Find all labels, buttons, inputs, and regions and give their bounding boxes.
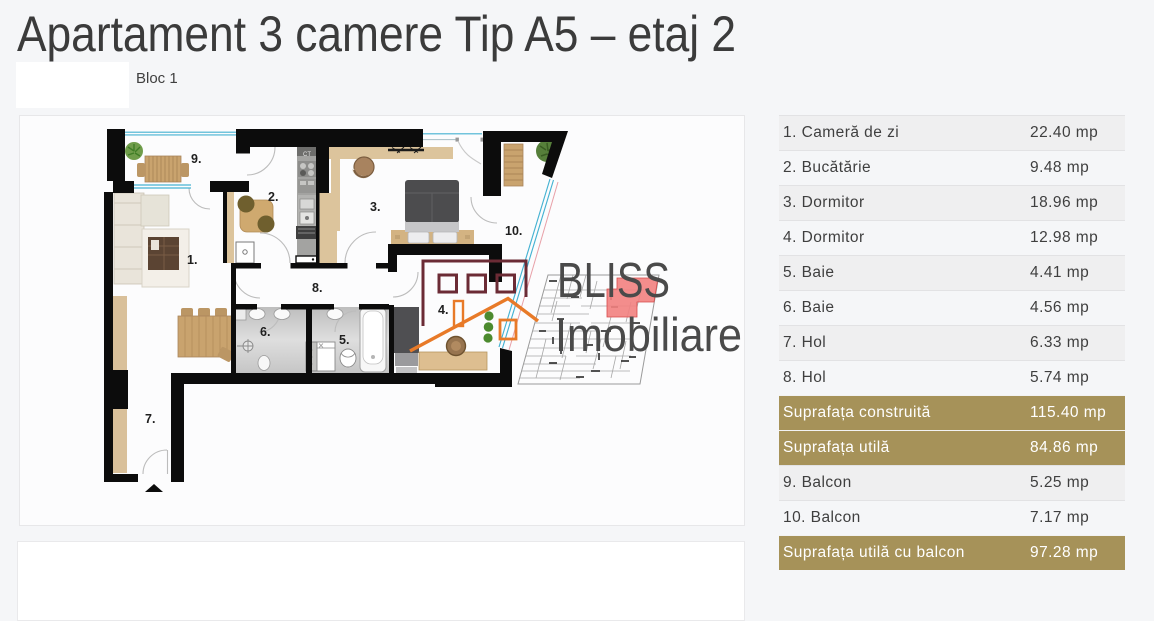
svg-text:BLISS: BLISS xyxy=(557,254,670,308)
svg-text:6.: 6. xyxy=(260,325,270,339)
svg-text:1.: 1. xyxy=(187,253,197,267)
svg-text:CT: CT xyxy=(303,152,311,158)
svg-text:2.: 2. xyxy=(268,190,278,204)
svg-text:3.: 3. xyxy=(370,200,380,214)
svg-text:7.: 7. xyxy=(145,412,155,426)
svg-text:5.: 5. xyxy=(339,333,349,347)
svg-text:8.: 8. xyxy=(312,281,322,295)
svg-text:Imobiliare: Imobiliare xyxy=(555,308,742,361)
svg-text:9.: 9. xyxy=(191,152,201,166)
svg-text:10.: 10. xyxy=(505,224,522,238)
svg-text:4.: 4. xyxy=(438,303,448,317)
